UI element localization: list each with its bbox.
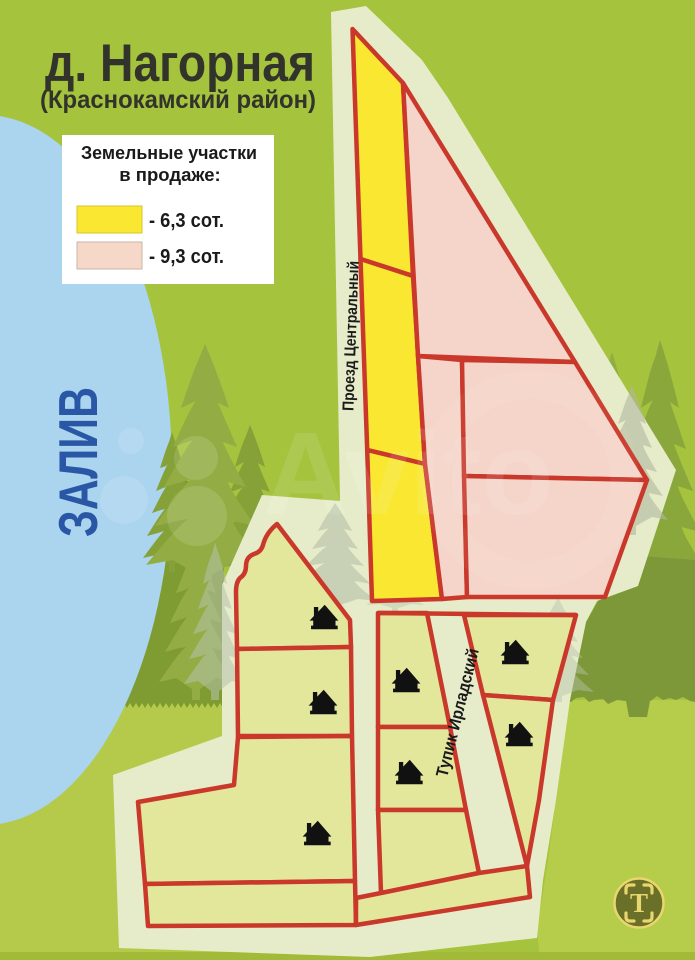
svg-text:Avito: Avito <box>263 408 554 540</box>
svg-text:- 9,3 сот.: - 9,3 сот. <box>149 246 224 268</box>
svg-text:д. Нагорная: д. Нагорная <box>45 34 315 93</box>
svg-text:- 6,3 сот.: - 6,3 сот. <box>149 210 224 232</box>
svg-text:T: T <box>630 888 648 918</box>
svg-text:в продаже:: в продаже: <box>119 164 220 185</box>
svg-text:(Краснокамский район): (Краснокамский район) <box>40 86 316 114</box>
svg-text:ЗАЛИВ: ЗАЛИВ <box>47 387 109 537</box>
svg-text:Земельные участки: Земельные участки <box>81 142 257 163</box>
